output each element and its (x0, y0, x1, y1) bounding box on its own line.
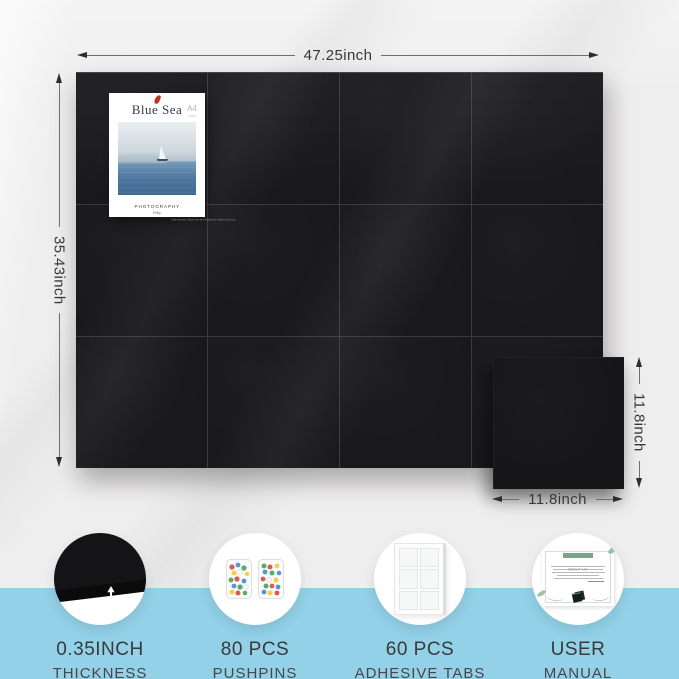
arrow-down-icon (636, 478, 642, 488)
felt-tile (472, 205, 603, 336)
dimension-line (381, 55, 589, 56)
feature-caption: ADHESIVE TABS (335, 665, 505, 679)
dimension-line (59, 313, 60, 457)
arrow-right-icon (589, 52, 599, 58)
felt-tile (340, 73, 471, 204)
boat-hull (157, 159, 168, 161)
product-infographic: 47.25inch 35.43inch A4 Paper Blue Sea (0, 0, 679, 679)
a4-paper-badge: A4 Paper (184, 99, 200, 121)
felt-tile (76, 205, 207, 336)
feature-label-user-manual: USER MANUAL (493, 639, 663, 679)
thickness-arrow-icon (105, 586, 117, 614)
arrow-up-icon (56, 73, 62, 83)
adhesive-tab-sheet (394, 543, 446, 615)
dimension-line (639, 461, 640, 478)
adhesive-tab (420, 569, 439, 588)
arrow-left-icon (492, 496, 502, 502)
sailboat-sea-photo (118, 122, 196, 195)
board-height-label: 35.43inch (51, 227, 68, 314)
feature-icon-user-manual: ABOUT US (532, 533, 624, 625)
felt-tile (340, 205, 471, 336)
felt-tile (76, 337, 207, 468)
feature-label-thickness: 0.35INCH THICKNESS (15, 639, 185, 679)
dimension-line (87, 55, 295, 56)
feature-caption: PUSHPINS (170, 665, 340, 679)
arrow-down-icon (56, 457, 62, 467)
dimension-tile-width: 11.8inch (492, 491, 623, 507)
a4-badge-text: A4 (187, 104, 197, 113)
dimension-tile-height: 11.8inch (632, 357, 646, 488)
dimension-line (59, 83, 60, 227)
dimension-board-height: 35.43inch (52, 73, 66, 467)
feature-value: 80 PCS (170, 639, 340, 661)
adhesive-tab (399, 591, 418, 610)
user-manual-page: ABOUT US (542, 548, 614, 606)
felt-tile (208, 337, 339, 468)
adhesive-tab (399, 548, 418, 567)
sailboat-icon (159, 146, 166, 159)
poster-caption-author: Philip (109, 203, 205, 208)
single-felt-tile (493, 357, 624, 489)
felt-tile (472, 73, 603, 204)
feature-value: USER (493, 639, 663, 661)
poster-footer-text: Sea scenery | Blue sea and sailboat | In… (109, 210, 205, 215)
dimension-line (502, 499, 519, 500)
pinned-poster: A4 Paper Blue Sea Philip & Elsa PHOTOGRA… (109, 93, 205, 217)
feature-icon-pushpins (209, 533, 301, 625)
feature-icon-adhesive-tabs (374, 533, 466, 625)
board-width-label: 47.25inch (295, 47, 382, 64)
feature-label-adhesive-tabs: 60 PCS ADHESIVE TABS (335, 639, 505, 679)
feature-value: 0.35INCH (15, 639, 185, 661)
tile-height-label: 11.8inch (631, 384, 648, 461)
adhesive-tab (420, 548, 439, 567)
dimension-line (596, 499, 613, 500)
feature-label-pushpins: 80 PCS PUSHPINS (170, 639, 340, 679)
adhesive-tab (420, 591, 439, 610)
feature-value: 60 PCS (335, 639, 505, 661)
felt-tile (340, 337, 471, 468)
felt-sample-swatch (572, 592, 583, 603)
feature-icon-thickness (54, 533, 146, 625)
feature-caption: THICKNESS (15, 665, 185, 679)
a4-badge-subtext: Paper (188, 115, 197, 118)
arrow-up-icon (636, 357, 642, 367)
pushpin-box-icon (257, 558, 285, 600)
leaf-decoration-icon (608, 543, 619, 556)
sea-waves (118, 162, 196, 195)
arrow-left-icon (77, 52, 87, 58)
feature-caption: MANUAL (493, 665, 663, 679)
pushpin-boxes (209, 533, 301, 625)
felt-tile (208, 205, 339, 336)
arrow-right-icon (613, 496, 623, 502)
adhesive-tab (399, 569, 418, 588)
felt-tile (208, 73, 339, 204)
dimension-line (639, 367, 640, 384)
dimension-board-width: 47.25inch (77, 48, 599, 62)
pushpin-box-icon (225, 558, 253, 600)
tile-width-label: 11.8inch (519, 491, 596, 508)
